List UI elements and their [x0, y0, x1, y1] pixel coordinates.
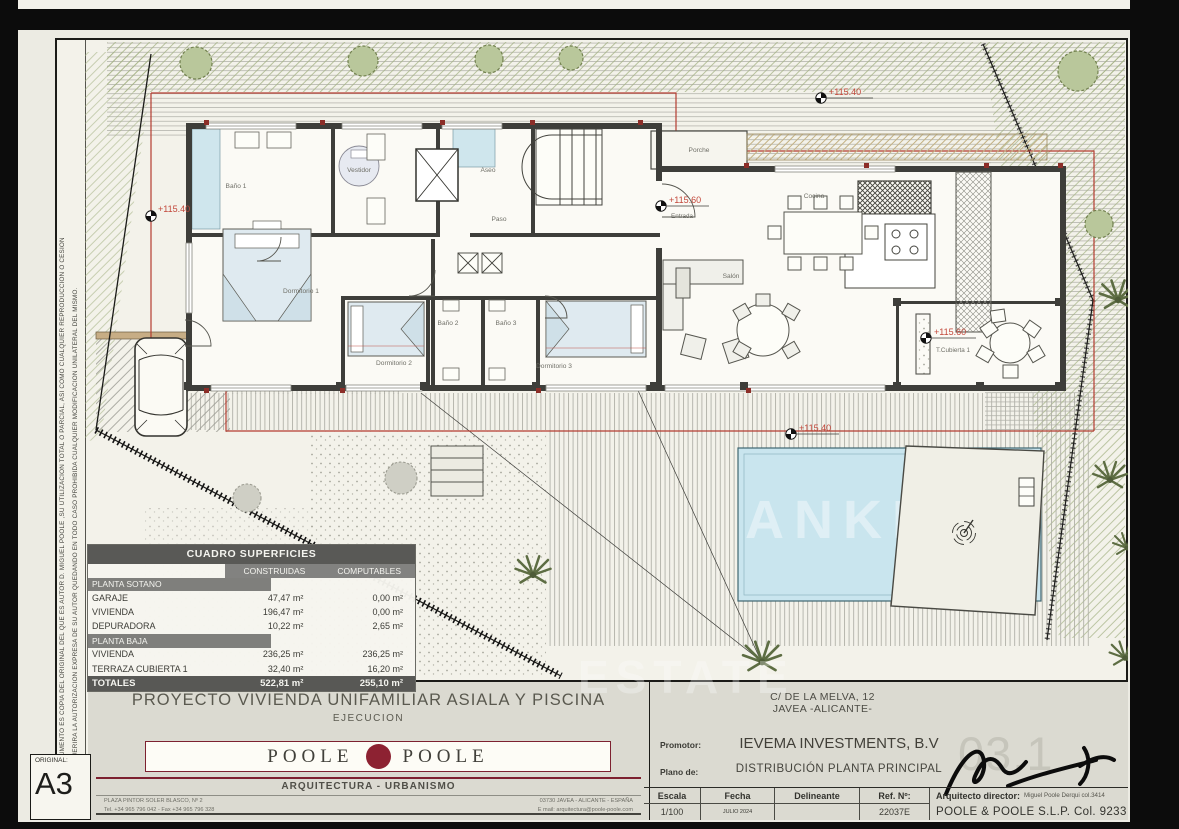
drawing-sheet: EL PRESENTE DOCUMENTO ES COPIA DEL ORIGI… — [18, 30, 1130, 822]
room-label-vestidor: Vestidor — [347, 167, 372, 174]
col-header-computables: COMPUTABLES — [323, 564, 415, 578]
bed-dormitorio-3 — [546, 301, 646, 357]
paper-size-box: ORIGINAL: A3 — [30, 754, 91, 820]
firm-logo: POOLE POOLE — [145, 741, 611, 772]
elevator-shaft — [416, 149, 458, 201]
firm-logo-circle-icon — [366, 744, 391, 769]
svg-text:+115.60: +115.60 — [669, 195, 701, 205]
firm-name-right: POOLE — [403, 746, 489, 768]
meta-table: Escala 1/100 Fecha JULIO 2024 Delineante… — [644, 787, 1128, 820]
arquitecto-name: Miguel Poole Derqui col.3414 — [1024, 792, 1105, 799]
title-block-right: C/ DE LA MELVA, 12 JAVEA -ALICANTE- Prom… — [650, 682, 1128, 820]
room-label-cocina: Cocina — [804, 193, 825, 200]
bed-dormitorio-2 — [348, 302, 424, 356]
paper-size: A3 — [35, 768, 86, 799]
room-label-salon: Salón — [723, 273, 740, 280]
table-row: VIVIENDA 196,47 m² 0,00 m² — [88, 606, 415, 620]
svg-text:Entrada: Entrada — [671, 213, 694, 220]
disclaimer-line-2: A TERCEROS, REQUERIRA LA AUTORIZACION EX… — [71, 40, 84, 818]
project-title: PROYECTO VIVIENDA UNIFAMILIAR ASIALA Y P… — [88, 691, 649, 710]
site-address-line2: JAVEA -ALICANTE- — [650, 703, 995, 715]
room-label-porche: Porche — [689, 147, 710, 154]
room-label-aseo: Aseo — [480, 167, 495, 174]
table-row: VIVIENDA 236,25 m² 236,25 m² — [88, 648, 415, 662]
bed-dormitorio-1 — [223, 221, 311, 321]
address-divider — [96, 795, 641, 796]
porch-roof-hatch — [747, 134, 1047, 160]
swimming-pool: ANKER — [738, 446, 1044, 615]
original-label: ORIGINAL: — [35, 757, 86, 764]
areas-table: CUADRO SUPERFICIES CONSTRUIDAS COMPUTABL… — [88, 545, 415, 691]
room-label-dormitorio2: Dormitorio 2 — [376, 360, 412, 367]
room-label-bano1: Baño 1 — [226, 183, 247, 190]
address-bottom-rule — [96, 813, 641, 815]
section-planta-baja: PLANTA BAJA — [88, 634, 415, 648]
svg-text:+115.40: +115.40 — [799, 423, 831, 433]
car — [135, 338, 187, 436]
room-label-bano3: Baño 3 — [496, 320, 517, 327]
exterior-stair — [431, 446, 483, 496]
copyright-disclaimer: EL PRESENTE DOCUMENTO ES COPIA DEL ORIGI… — [58, 40, 85, 818]
pool-ladder-icon — [1019, 478, 1034, 506]
firm-tagline: ARQUITECTURA - URBANISMO — [88, 781, 649, 792]
title-block: PROYECTO VIVIENDA UNIFAMILIAR ASIALA Y P… — [88, 680, 1128, 820]
room-label-paso: Paso — [491, 216, 506, 223]
svg-text:T.Cubierta 1: T.Cubierta 1 — [936, 347, 970, 354]
top-white-strip — [18, 0, 1130, 9]
pool-deck — [891, 446, 1044, 615]
table-row: TERRAZA CUBIERTA 1 32,40 m² 16,20 m² — [88, 662, 415, 676]
firm-name-left: POOLE — [267, 746, 353, 768]
arquitecto-firm: POOLE & POOLE S.L.P. Col. 9233 — [936, 803, 1128, 820]
disclaimer-line-1: EL PRESENTE DOCUMENTO ES COPIA DEL ORIGI… — [58, 40, 71, 818]
svg-text:+115.40: +115.40 — [158, 204, 190, 214]
logo-red-rule — [96, 777, 641, 779]
meta-arquitecto: Arquitecto director: Miguel Poole Derqui… — [930, 788, 1128, 820]
areas-table-title: CUADRO SUPERFICIES — [88, 545, 415, 564]
meta-fecha: Fecha JULIO 2024 — [701, 788, 775, 820]
title-block-left: PROYECTO VIVIENDA UNIFAMILIAR ASIALA Y P… — [88, 682, 650, 820]
site-address-line1: C/ DE LA MELVA, 12 — [650, 691, 995, 703]
table-row: GARAJE 47,47 m² 0,00 m² — [88, 591, 415, 605]
room-label-dormitorio1: Dormitorio 1 — [283, 288, 319, 295]
level-marker: +115.40 — [146, 204, 190, 221]
arquitecto-label: Arquitecto director: — [936, 791, 1020, 801]
meta-delineante: Delineante — [775, 788, 860, 820]
table-row: DEPURADORA 10,22 m² 2,65 m² — [88, 620, 415, 634]
screenshot-root: { "sheet": { "disclaimer_line1": "EL PRE… — [0, 0, 1179, 829]
room-label-bano2: Baño 2 — [438, 320, 459, 327]
meta-escala: Escala 1/100 — [644, 788, 701, 820]
svg-text:+115.60: +115.60 — [934, 327, 966, 337]
house: Baño 1 Vestidor Aseo Dormitorio 1 Paso P… — [146, 87, 1066, 439]
room-label-dormitorio3: Dormitorio 3 — [536, 363, 572, 370]
pantry-shelving — [956, 172, 991, 332]
meta-ref: Ref. Nº: 22037E — [860, 788, 930, 820]
project-phase: EJECUCION — [88, 713, 649, 724]
col-header-construidas: CONSTRUIDAS — [225, 564, 323, 578]
svg-text:+115.40: +115.40 — [829, 87, 861, 97]
section-planta-sotano: PLANTA SOTANO — [88, 578, 415, 592]
totals-row: TOTALES 522,81 m² 255,10 m² — [88, 676, 415, 691]
